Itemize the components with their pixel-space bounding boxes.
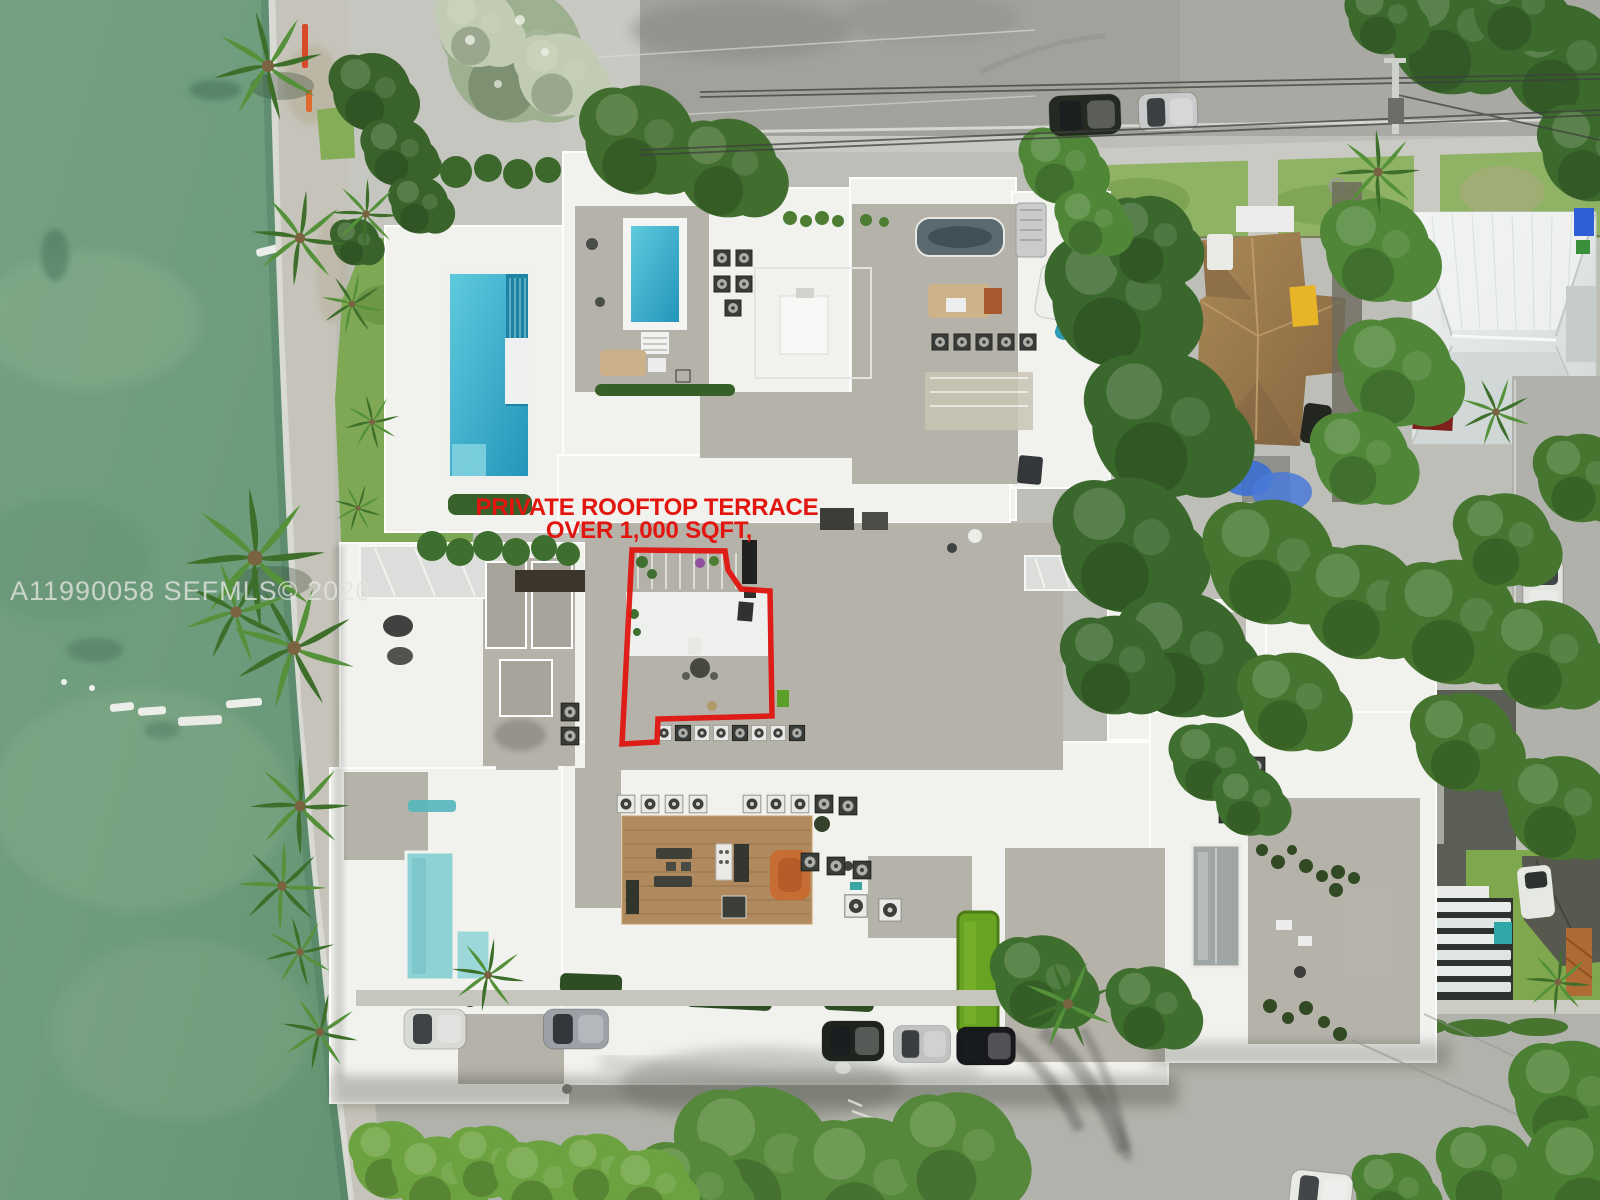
- hedge-row: [595, 384, 735, 396]
- grill: [737, 601, 754, 621]
- lounger: [654, 876, 692, 887]
- blue-bin: [1574, 208, 1594, 236]
- lounger: [656, 848, 692, 859]
- wood-deck-terrace: [622, 816, 812, 924]
- submerged-rock: [67, 638, 123, 662]
- aerial-photo: PRIVATE ROOFTOP TERRACE OVER 1,000 SQFT,…: [0, 0, 1600, 1200]
- pergola-area: [925, 372, 1033, 430]
- parked-car: [543, 1009, 608, 1049]
- ac-units-row: [932, 334, 1036, 350]
- sofa: [734, 844, 749, 882]
- bar-cart: [716, 844, 732, 880]
- parked-car: [404, 1009, 466, 1049]
- teal-pool: [1494, 922, 1512, 944]
- outdoor-sofa: [600, 350, 646, 376]
- yellow-rooftop-object: [1289, 285, 1318, 327]
- silver-vent-unit: [1016, 203, 1046, 257]
- rooftop-bin: [1017, 455, 1043, 485]
- rust-throw: [984, 288, 1002, 314]
- rooftop-equipment: [742, 540, 757, 584]
- ladder: [688, 638, 701, 655]
- parked-car: [822, 1021, 884, 1061]
- white-trailer: [1207, 234, 1233, 270]
- manhole: [562, 1084, 572, 1094]
- courtyard-furniture: [820, 508, 854, 530]
- submerged-rock: [189, 80, 241, 100]
- green-bin: [1576, 240, 1590, 254]
- flat-roof-section: [1236, 206, 1294, 232]
- parked-car: [893, 1026, 950, 1063]
- roof-vent: [383, 615, 413, 637]
- parked-car: [1138, 92, 1198, 132]
- planter-boxes: [515, 570, 585, 592]
- fire-table: [722, 896, 746, 918]
- glass-roof-structure: [1427, 886, 1513, 1002]
- roof-extension: [1566, 286, 1596, 362]
- roof-vent: [387, 647, 413, 665]
- pool-platform: [505, 338, 528, 404]
- annotation-line-2: OVER 1,000 SQFT,: [546, 517, 752, 544]
- patio-table: [690, 658, 710, 678]
- aerial-photo-stage: PRIVATE ROOFTOP TERRACE OVER 1,000 SQFT,…: [0, 0, 1600, 1200]
- rooftop-skylight: [1192, 845, 1240, 967]
- skylight-panel: [500, 660, 552, 716]
- mls-watermark: A11990058 SEFMLS© 2026: [10, 576, 371, 606]
- purple-flowers: [695, 558, 705, 568]
- parked-car: [957, 1027, 1016, 1065]
- main-pool: [446, 270, 532, 480]
- submerged-rock: [41, 229, 69, 281]
- planter: [626, 880, 639, 914]
- pool-steps: [452, 444, 486, 476]
- green-pad: [777, 690, 789, 707]
- potted-plant: [814, 816, 830, 832]
- southwest-court: [344, 772, 428, 860]
